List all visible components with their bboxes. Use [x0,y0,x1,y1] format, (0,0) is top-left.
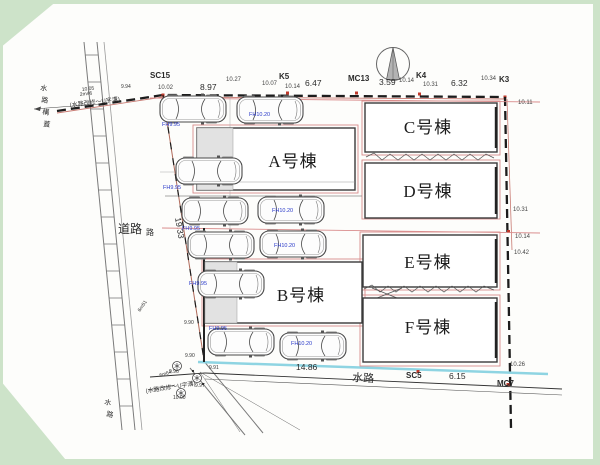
offset-label: 10.27 [226,77,242,83]
fh-level-label: FH10.20 [249,112,270,118]
survey-point-label: K4 [416,71,427,80]
car-icon [188,230,254,261]
survey-point-label: SC5 [406,371,422,380]
building-d: D号棟 [365,163,497,218]
car-icon [160,94,226,125]
offset-label: 10.31 [423,82,439,88]
building-f-label: F号棟 [405,318,451,337]
waterway-char: 水 [40,83,48,93]
building-c: C号棟 [365,103,497,152]
spot-level-label: 9.97 [195,383,205,389]
car-icon [182,196,248,227]
spot-level-label: 9.91 [209,365,219,371]
offset-label: 10.02 [158,85,174,91]
dim-label: 6.15 [449,371,466,381]
car-icon [280,331,346,362]
dim-label: 14.86 [296,362,318,372]
road-label-small: 路 [146,227,154,237]
fh-level-label: FH10.20 [274,243,295,249]
waterway-char: 蓋 [43,119,51,129]
dim-label: 3.59 [379,77,396,87]
site-plan-page: 水 路 構 蓋 水 路 道路 路 19.33 [0,0,600,465]
offset-label: 10.34 [481,76,497,82]
building-e-label: E号棟 [404,253,451,272]
survey-point-label: K5 [279,72,290,81]
car-icon [237,95,303,126]
offset-label: 10.14 [285,84,301,90]
car-icon [176,156,242,187]
building-a-label: A号棟 [268,152,317,171]
survey-point-label: K3 [499,75,510,84]
offset-label: 10.42 [514,250,530,256]
road-label: 道路 [118,221,142,236]
dim-label: 6.47 [305,78,322,88]
offset-label: 10.14 [515,234,531,240]
survey-point-label: MC7 [497,379,514,388]
spot-level-label: 10.00 [173,395,186,401]
waterway-char: 路 [41,95,49,105]
fh-level-label: FH9.95 [182,226,200,232]
fh-level-label: FH9.95 [163,185,181,191]
offset-label: 10.11 [518,100,533,106]
fh-level-label: FH10.20 [291,341,312,347]
dim-label: 6.32 [451,78,468,88]
fh-level-label: FH9.95 [189,281,207,287]
spot-level-label: 9.90 [184,320,194,326]
spot-level-label: 9.94 [121,84,131,90]
offset-label: 10.07 [262,81,278,87]
survey-point-label: MC13 [348,74,370,83]
offset-label: 10.26 [510,362,526,368]
building-b-label: B号棟 [277,286,325,305]
spot-level-label: 9.90 [185,353,195,359]
offset-label: 10.31 [513,207,529,213]
building-c-label: C号棟 [404,118,452,137]
building-e: E号棟 [363,235,497,287]
spot-level-label: 9.96 [169,369,179,375]
fh-level-label: FH10.20 [272,208,293,214]
car-icon [198,269,264,300]
building-d-label: D号棟 [403,182,452,201]
dim-label: 8.97 [200,82,217,92]
building-f: F号棟 [363,298,497,362]
fh-level-label: FH9.95 [209,326,227,332]
site-plan-drawing: 水 路 構 蓋 水 路 道路 路 19.33 [0,0,600,465]
survey-point-label: SC15 [150,71,171,80]
fh-level-label: FH9.95 [162,122,180,128]
offset-label: 10.14 [399,78,415,84]
waterway-label-south: 水路 [352,371,375,385]
